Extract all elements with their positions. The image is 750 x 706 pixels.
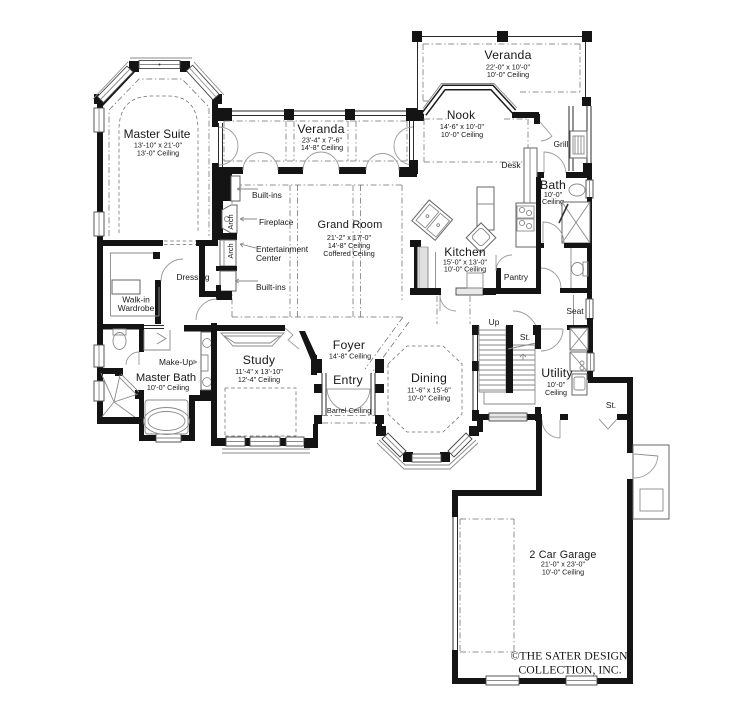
svg-text:Pantry: Pantry [504,272,529,282]
svg-text:Master Suite: Master Suite [124,127,191,141]
svg-text:Arch: Arch [226,243,235,258]
svg-text:Grill: Grill [554,139,569,149]
svg-text:Ceiling: Ceiling [542,197,564,206]
svg-text:St.: St. [520,332,530,342]
svg-text:Entry: Entry [333,373,363,387]
svg-text:10'-0" Ceiling: 10'-0" Ceiling [147,383,189,392]
svg-text:Veranda: Veranda [297,122,344,136]
svg-text:Wardrobe: Wardrobe [118,303,155,313]
svg-text:Arch: Arch [226,214,235,229]
svg-text:10'-0" Ceiling: 10'-0" Ceiling [444,265,486,274]
svg-text:10'-0" Ceiling: 10'-0" Ceiling [542,568,584,577]
svg-text:Study: Study [243,353,276,367]
svg-text:Coffered Ceiling: Coffered Ceiling [323,249,374,258]
svg-text:Utility: Utility [541,366,573,380]
svg-text:Make-Up: Make-Up [159,357,193,367]
svg-text:10'-0" Ceiling: 10'-0" Ceiling [441,130,483,139]
svg-text:Nook: Nook [447,108,475,122]
svg-text:Dressing: Dressing [176,272,209,282]
svg-text:Grand Room: Grand Room [318,219,383,231]
svg-text:Built-ins: Built-ins [256,282,286,292]
svg-text:10'-0" Ceiling: 10'-0" Ceiling [487,70,529,79]
svg-text:Center: Center [256,253,281,263]
svg-text:Veranda: Veranda [484,48,531,62]
svg-text:Fireplace: Fireplace [259,217,294,227]
svg-text:13'-0" Ceiling: 13'-0" Ceiling [137,149,179,158]
svg-text:14'-8" Ceiling: 14'-8" Ceiling [301,143,343,152]
svg-text:Barrel Ceiling: Barrel Ceiling [327,406,371,415]
svg-text:12'-4" Ceiling: 12'-4" Ceiling [238,375,280,384]
svg-text:Built-ins: Built-ins [252,190,282,200]
svg-text:14'-8" Ceiling: 14'-8" Ceiling [329,352,371,361]
svg-text:St.: St. [606,400,616,410]
svg-text:COLLECTION, INC.: COLLECTION, INC. [518,663,621,677]
svg-text:Seat: Seat [566,306,584,316]
svg-text:Up: Up [489,317,500,327]
svg-text:10'-0" Ceiling: 10'-0" Ceiling [408,394,450,403]
svg-text:Foyer: Foyer [333,338,365,352]
svg-text:Ceiling: Ceiling [545,388,567,397]
svg-text:Desk: Desk [501,160,521,170]
svg-text:Dining: Dining [411,371,447,385]
svg-text:©THE SATER DESIGN: ©THE SATER DESIGN [510,649,628,663]
